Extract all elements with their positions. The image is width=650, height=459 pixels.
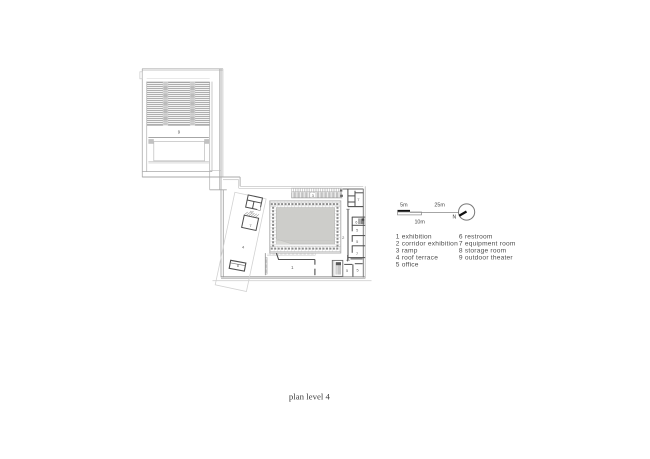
svg-text:5: 5: [356, 268, 358, 272]
svg-text:5: 5: [356, 240, 358, 244]
svg-text:8 storage room: 8 storage room: [459, 248, 507, 255]
svg-text:N: N: [452, 215, 456, 221]
svg-text:5m: 5m: [400, 203, 408, 209]
svg-text:6 restroom: 6 restroom: [459, 233, 493, 240]
svg-text:5: 5: [346, 269, 348, 273]
svg-text:6: 6: [355, 221, 357, 225]
svg-text:1 exhibition: 1 exhibition: [396, 233, 432, 240]
svg-text:4 roof terrace: 4 roof terrace: [396, 255, 438, 262]
svg-text:2 corridor exhibition: 2 corridor exhibition: [396, 240, 458, 247]
svg-text:10m: 10m: [414, 220, 425, 226]
svg-text:9 outdoor theater: 9 outdoor theater: [459, 255, 514, 262]
svg-text:5: 5: [356, 229, 358, 233]
svg-text:plan level 4: plan level 4: [289, 391, 331, 401]
svg-text:25m: 25m: [434, 203, 445, 209]
svg-text:5 office: 5 office: [396, 262, 419, 269]
svg-text:7 equipment room: 7 equipment room: [459, 240, 516, 247]
svg-text:3 ramp: 3 ramp: [396, 248, 418, 255]
svg-text:8: 8: [237, 264, 239, 268]
svg-text:7: 7: [356, 252, 358, 256]
